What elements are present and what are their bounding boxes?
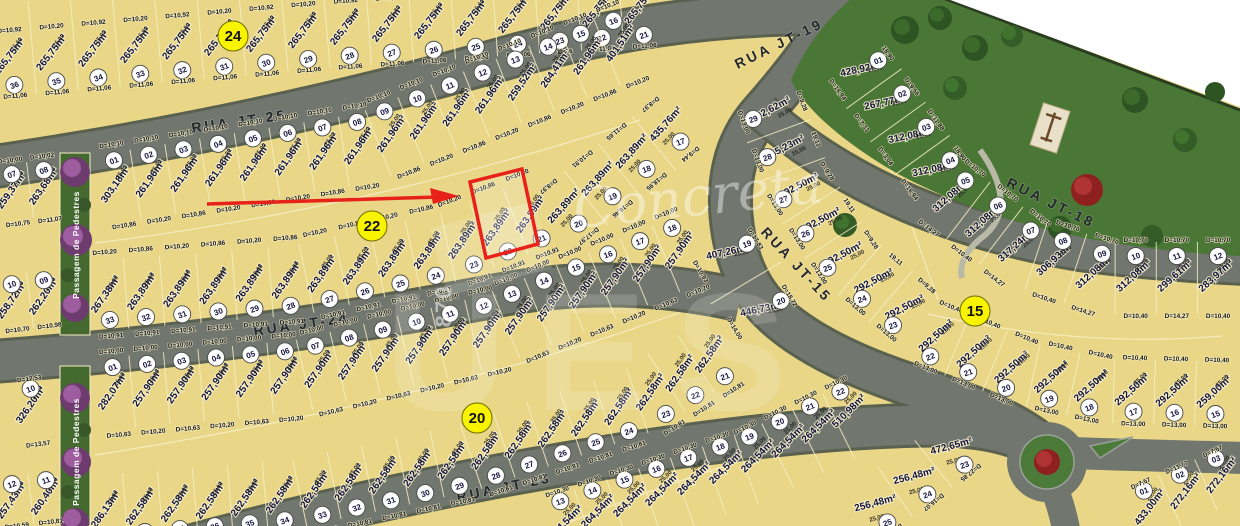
lot-number: 18: [1081, 399, 1098, 416]
lot-number: 12: [3, 476, 20, 493]
block-badge: 22: [357, 211, 387, 241]
lot-number: 14: [540, 38, 557, 55]
passage-label-upper: Passagem de Pedestres: [71, 191, 81, 299]
lot-number: 06: [279, 124, 296, 141]
lot-number: 33: [314, 506, 331, 523]
lot-number: 07: [307, 337, 324, 354]
lot-number: 27: [521, 456, 538, 473]
lot-number: 11: [37, 472, 54, 489]
tree-icon: [1173, 128, 1197, 152]
lot-frontage-dim: D=10,40: [1164, 356, 1189, 364]
lot-number: 16: [605, 12, 622, 29]
lot-number: 21: [635, 26, 652, 43]
lot-number: 12: [1210, 248, 1227, 265]
lot-number: 26: [554, 445, 571, 462]
lot-number: 13: [507, 51, 524, 68]
lot-number: 34: [90, 69, 107, 86]
lot-number: 17: [632, 233, 649, 250]
lot-number: 06: [990, 197, 1007, 214]
lot-number: 35: [48, 73, 65, 90]
lot-number: 36: [6, 76, 23, 93]
lot-number: 08: [35, 162, 52, 179]
lot-number: 32: [348, 499, 365, 516]
lot-number: 30: [258, 54, 275, 71]
lot-number: 30: [417, 485, 434, 502]
lot-number: 20: [998, 379, 1015, 396]
lot-number: 08: [1054, 232, 1071, 249]
tree-icon: [943, 76, 967, 100]
svg-text:20: 20: [469, 410, 486, 427]
lot-number: 10: [3, 276, 20, 293]
lot-number: 26: [356, 283, 373, 300]
lot-number: 07: [314, 119, 331, 136]
lot-number: 15: [1207, 405, 1224, 422]
lot-number: 21: [960, 364, 977, 381]
lot-number: 15: [572, 25, 589, 42]
lot-rear-dim: D=14,27: [1165, 313, 1190, 320]
lot-number: 22: [922, 348, 939, 365]
lot-number: 06: [277, 343, 294, 360]
lot-number: 29: [300, 51, 317, 68]
block-badge: 15: [960, 296, 990, 326]
lot-frontage-dim: D=10,70: [1165, 237, 1190, 244]
lot-number: 01: [104, 359, 121, 376]
lot-number: 29: [451, 477, 468, 494]
lot-number: 09: [35, 272, 52, 289]
red-tree-icon: [1071, 174, 1103, 206]
lot-number: 01: [105, 152, 122, 169]
lot-number: 07: [3, 166, 20, 183]
passage-label-lower: Passagem de Pedestres: [71, 398, 81, 506]
lot-number: 17: [1125, 403, 1142, 420]
tree-icon: [1205, 82, 1225, 102]
tree-icon: [891, 16, 919, 44]
lot-frontage-dim: D=10,40: [1123, 354, 1148, 362]
block-badge: 20: [462, 403, 492, 433]
lot-number: 08: [349, 113, 366, 130]
lot-number: 10: [1127, 248, 1144, 265]
svg-text:22: 22: [364, 218, 381, 235]
lot-rear-dim: D=13,00: [1121, 420, 1146, 428]
lot-rear-dim: D=13,00: [1162, 422, 1187, 430]
lot-number: 33: [101, 311, 118, 328]
lot-number: 32: [138, 309, 155, 326]
lot-frontage-dim: D=10,40: [1205, 357, 1230, 365]
map-canvas[interactable]: Passagem de Pedestres Passagem de Pedest…: [0, 0, 1240, 526]
lot-number: 19: [1041, 390, 1058, 407]
lot-number: 05: [242, 346, 259, 363]
tree-icon: [1001, 25, 1023, 47]
lot-number: 33: [132, 65, 149, 82]
lot-number: 09: [376, 103, 393, 120]
svg-text:15: 15: [967, 303, 984, 320]
lot-number: 28: [282, 297, 299, 314]
lot-number: 31: [382, 492, 399, 509]
lot-number: 02: [140, 146, 157, 163]
lot-number: 08: [341, 329, 358, 346]
lot-frontage-dim: D=10,70: [1124, 237, 1149, 244]
red-tree-icon: [1034, 449, 1060, 475]
lot-number: 10: [409, 90, 426, 107]
lot-number: 16: [1166, 404, 1183, 421]
lot-number: 04: [208, 349, 225, 366]
lot-number: 27: [383, 44, 400, 61]
tree-icon: [928, 6, 952, 30]
lot-number: 27: [321, 291, 338, 308]
lot-rear-dim: D=10,40: [1206, 313, 1231, 320]
lot-number: 11: [1168, 248, 1185, 265]
lot-number: 03: [175, 141, 192, 158]
purple-tree-icon: [60, 157, 90, 187]
lot-number: 09: [1093, 245, 1110, 262]
lot-number: 34: [276, 512, 293, 526]
block-badge: 24: [218, 21, 248, 51]
lot-number: 11: [441, 77, 458, 94]
lot-number: 31: [174, 306, 191, 323]
tree-icon: [1122, 87, 1148, 113]
lot-number: 26: [425, 41, 442, 58]
lot-number: 05: [957, 172, 974, 189]
lot-frontage-dim: D=10,70: [1206, 237, 1231, 244]
lot-number: 05: [244, 130, 261, 147]
tree-icon: [962, 35, 988, 61]
lot-number: 32: [174, 62, 191, 79]
lot-number: 29: [246, 300, 263, 317]
lot-rear-dim: D=10,40: [1124, 313, 1149, 320]
lot-rear-dim: D=13,00: [1203, 423, 1228, 431]
lot-number: 28: [341, 47, 358, 64]
lot-number: 28: [487, 467, 504, 484]
lot-number: 31: [216, 58, 233, 75]
lot-number: 03: [173, 352, 190, 369]
lot-number: 04: [210, 135, 227, 152]
lot-number: 12: [474, 64, 491, 81]
lot-number: 07: [1022, 222, 1039, 239]
lot-number: 17: [672, 133, 689, 150]
lot-number: 30: [210, 303, 227, 320]
svg-text:24: 24: [225, 28, 242, 45]
lot-number: 02: [139, 355, 156, 372]
